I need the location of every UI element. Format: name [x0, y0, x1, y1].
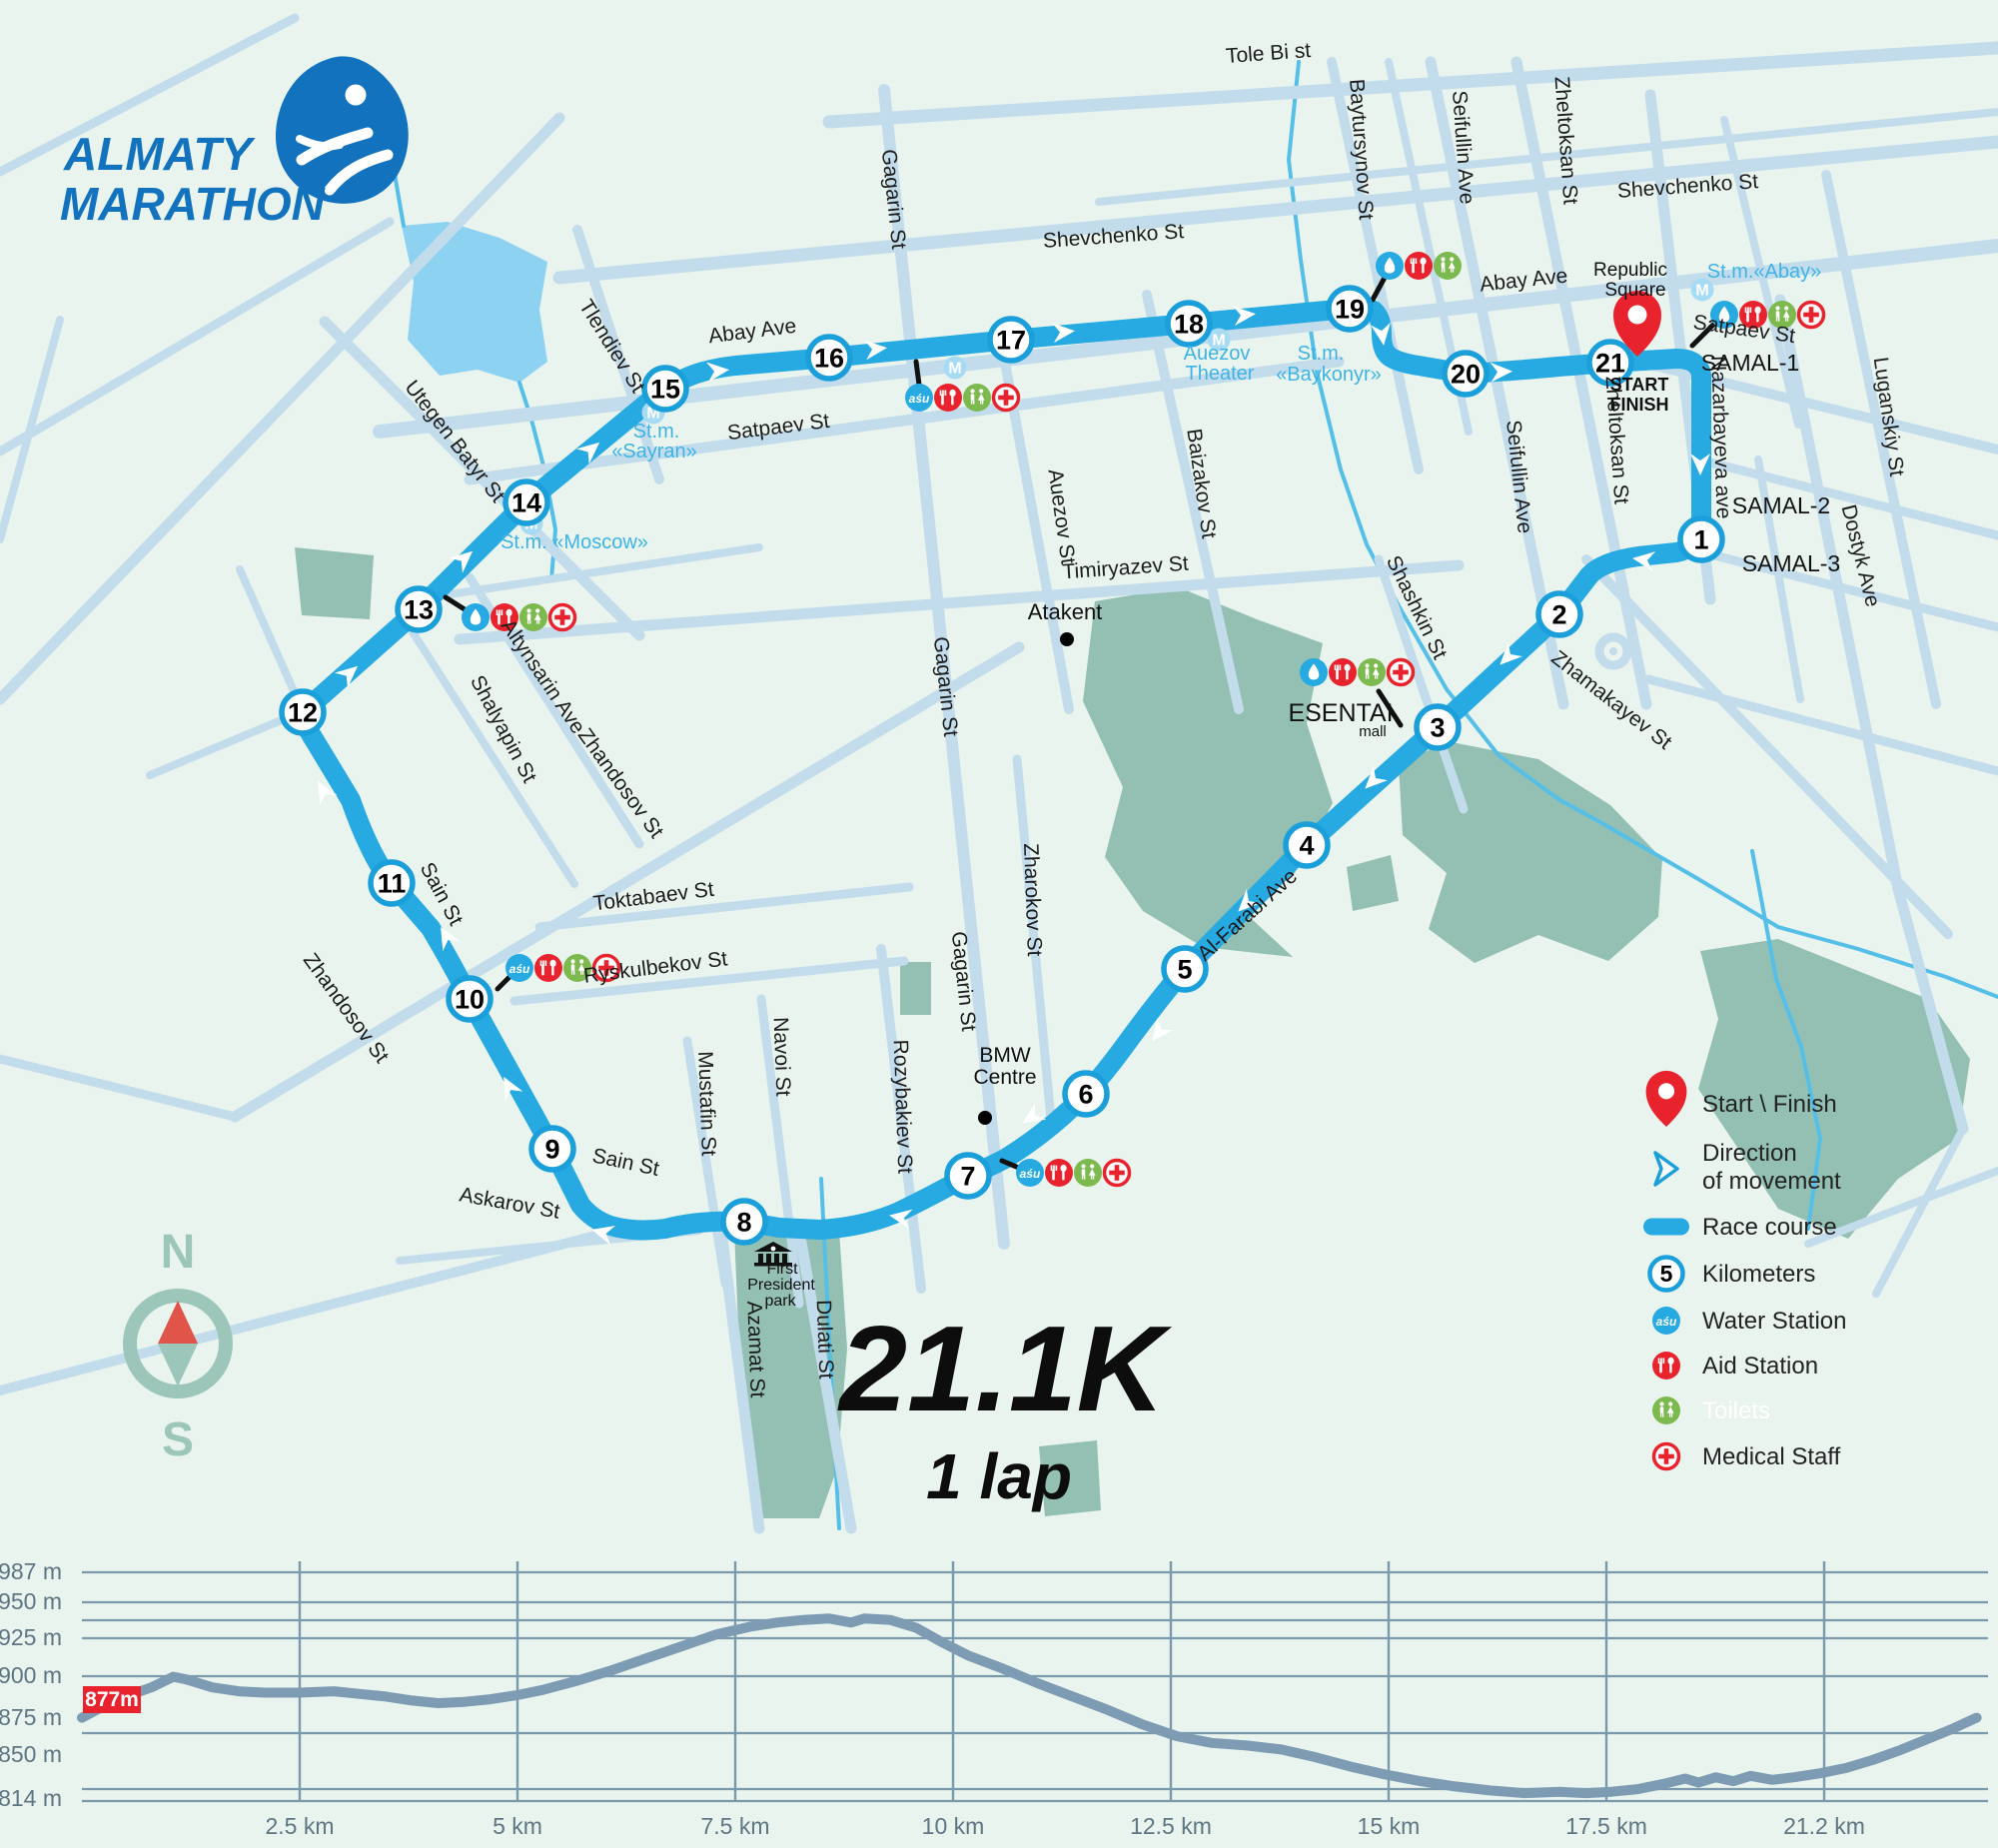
toilets-icon — [1434, 252, 1462, 280]
logo-line2: MARATHON — [60, 178, 326, 230]
svg-text:aśu: aśu — [1656, 1315, 1677, 1329]
roundabout-center — [1609, 647, 1617, 655]
medical-staff-icon — [550, 605, 575, 630]
legend-label-2: of movement — [1702, 1168, 1841, 1195]
water-station-icon: aśu — [505, 954, 533, 982]
svg-text:11: 11 — [378, 869, 407, 899]
water-station-icon — [1300, 658, 1328, 686]
metro-station-label: St.m. — [1298, 343, 1345, 365]
svg-text:5: 5 — [1177, 955, 1192, 985]
km-marker-17: 17 — [990, 319, 1032, 361]
place-label: Centre — [973, 1066, 1036, 1089]
svg-text:5: 5 — [1660, 1261, 1673, 1287]
km-marker-1: 1 — [1680, 518, 1722, 560]
metro-station-label: St.m.«Abay» — [1707, 261, 1822, 283]
station-leader-line — [916, 362, 919, 385]
elevation-x-tick-label: 10 km — [922, 1813, 985, 1839]
metro-station-label: Auezov — [1184, 343, 1251, 365]
legend-item-toilets: Toilets — [1652, 1396, 1770, 1424]
place-label: Republic — [1593, 260, 1667, 281]
elevation-x-tick-label: 2.5 km — [265, 1813, 334, 1839]
km-marker-14: 14 — [505, 481, 547, 523]
elevation-x-tick-label: 7.5 km — [700, 1813, 769, 1839]
medical-staff-icon — [994, 386, 1019, 411]
water-station-icon — [1376, 252, 1404, 280]
svg-text:1: 1 — [1693, 525, 1708, 555]
svg-text:aśu: aśu — [1020, 1167, 1041, 1181]
elevation-y-tick-label: 814 m — [0, 1785, 62, 1811]
legend-label: Direction — [1702, 1140, 1797, 1167]
place-label: FINISH — [1609, 395, 1668, 415]
water-station-icon: aśu — [905, 384, 933, 412]
svg-text:14: 14 — [511, 488, 541, 518]
elevation-y-tick-label: 950 m — [0, 1588, 62, 1614]
legend-label: Kilometers — [1702, 1261, 1815, 1288]
water-station-icon — [462, 603, 490, 631]
laps-subtitle: 1 lap — [926, 1440, 1072, 1512]
svg-text:16: 16 — [814, 344, 844, 374]
park-area — [295, 547, 374, 619]
elevation-x-tick-label: 15 km — [1358, 1813, 1421, 1839]
poi-dot — [1060, 632, 1074, 646]
park-area — [900, 962, 931, 1015]
street-label: Mustafin St — [693, 1051, 720, 1157]
metro-station-label: St.m. — [633, 421, 680, 443]
svg-text:6: 6 — [1078, 1080, 1093, 1110]
elevation-x-tick-label: 5 km — [493, 1813, 542, 1839]
elevation-x-tick-label: 21.2 km — [1783, 1813, 1865, 1839]
place-label: mall — [1359, 723, 1387, 740]
place-label: SAMAL-3 — [1742, 550, 1840, 576]
km-marker-3: 3 — [1417, 706, 1459, 748]
aid-station-icon — [534, 954, 562, 982]
water-station-icon: aśu — [1016, 1159, 1044, 1187]
logo-line1: ALMATY — [63, 128, 257, 180]
svg-text:17: 17 — [996, 326, 1026, 356]
toilets-icon — [963, 384, 991, 412]
compass-north-label: N — [161, 1226, 196, 1279]
svg-text:13: 13 — [404, 595, 434, 625]
aid-station-icon — [1045, 1159, 1073, 1187]
metro-station-label: «Sayran» — [611, 441, 697, 462]
toilets-icon — [1358, 658, 1386, 686]
place-label: Atakent — [1028, 599, 1103, 624]
street-label: Navoi St — [769, 1017, 795, 1097]
svg-text:8: 8 — [736, 1208, 751, 1238]
svg-text:21: 21 — [1595, 349, 1625, 379]
start-elevation-badge-label: 877m — [85, 1688, 139, 1711]
medical-staff-icon — [1105, 1161, 1130, 1186]
km-marker-9: 9 — [531, 1128, 573, 1170]
aid-station-icon — [1329, 658, 1357, 686]
elevation-y-tick-label: 987 m — [0, 1558, 62, 1584]
svg-text:12: 12 — [288, 698, 318, 728]
map-canvas: aśuaśuaśuMMMMM12345678910111213141516171… — [0, 0, 1998, 1848]
svg-text:2: 2 — [1551, 600, 1566, 630]
aid-station-icon — [1405, 252, 1433, 280]
km-marker-2: 2 — [1538, 593, 1580, 635]
metro-station-label: «Baykonyr» — [1276, 364, 1382, 386]
station-group: aśu — [1002, 1159, 1130, 1187]
toilets-icon — [1074, 1159, 1102, 1187]
svg-text:M: M — [948, 361, 961, 378]
km-marker-18: 18 — [1168, 303, 1210, 345]
place-label: START — [1610, 375, 1669, 395]
svg-text:10: 10 — [455, 985, 485, 1015]
km-marker-4: 4 — [1286, 824, 1328, 866]
legend-label: Start \ Finish — [1702, 1091, 1837, 1118]
compass-south-label: S — [162, 1413, 194, 1466]
svg-text:18: 18 — [1174, 310, 1204, 340]
svg-text:7: 7 — [960, 1162, 975, 1192]
legend-item-km: 5Kilometers — [1650, 1258, 1816, 1291]
km-marker-10: 10 — [449, 978, 491, 1020]
svg-text:aśu: aśu — [509, 962, 530, 976]
legend-label: Aid Station — [1702, 1353, 1818, 1380]
svg-text:19: 19 — [1335, 295, 1365, 325]
place-label: Square — [1604, 280, 1665, 301]
km-marker-6: 6 — [1065, 1073, 1107, 1115]
aid-station-icon — [934, 384, 962, 412]
metro-station-label: St.m. «Moscow» — [500, 531, 648, 553]
elevation-y-tick-label: 850 m — [0, 1741, 62, 1767]
km-marker-7: 7 — [947, 1155, 989, 1197]
place-label: SAMAL-2 — [1732, 492, 1830, 518]
km-marker-16: 16 — [808, 337, 850, 379]
almaty-marathon-course-map: aśuaśuaśuMMMMM12345678910111213141516171… — [0, 0, 1998, 1848]
medical-staff-icon — [1799, 303, 1824, 328]
metro-station-label: Theater — [1186, 363, 1255, 385]
elevation-y-tick-label: 900 m — [0, 1662, 62, 1688]
svg-text:3: 3 — [1430, 713, 1445, 743]
legend-label: Race course — [1702, 1214, 1837, 1241]
legend-label: Water Station — [1702, 1308, 1847, 1335]
elevation-x-tick-label: 17.5 km — [1565, 1813, 1647, 1839]
legend-label: Medical Staff — [1702, 1443, 1841, 1470]
svg-text:M: M — [1695, 283, 1708, 300]
km-marker-20: 20 — [1445, 353, 1487, 395]
svg-text:20: 20 — [1451, 360, 1481, 390]
svg-text:9: 9 — [544, 1135, 559, 1165]
place-label: SAMAL-1 — [1701, 350, 1799, 376]
medical-staff-icon — [1389, 660, 1414, 685]
poi-dot — [978, 1111, 992, 1125]
elevation-y-tick-label: 925 m — [0, 1624, 62, 1650]
street-label: Azamat St — [742, 1301, 768, 1398]
km-marker-11: 11 — [371, 862, 413, 904]
km-marker-8: 8 — [723, 1201, 765, 1243]
elevation-x-tick-label: 12.5 km — [1130, 1813, 1212, 1839]
street-label: Dulati St — [812, 1300, 838, 1380]
place-label: BMW — [979, 1044, 1031, 1067]
km-marker-15: 15 — [644, 368, 686, 410]
svg-text:15: 15 — [650, 375, 680, 405]
place-label: President — [747, 1277, 815, 1294]
street-label: Zharokov St — [1019, 843, 1046, 957]
metro-station-icon: M — [944, 357, 967, 380]
svg-text:4: 4 — [1299, 831, 1314, 861]
place-label: park — [764, 1293, 796, 1310]
distance-title: 21.1K — [837, 1301, 1172, 1436]
km-marker-12: 12 — [282, 691, 324, 733]
km-marker-13: 13 — [398, 588, 440, 630]
street-label: Rozybakiev St — [889, 1039, 917, 1174]
km-marker-19: 19 — [1329, 288, 1371, 330]
svg-text:aśu: aśu — [909, 392, 930, 406]
legend-label: Toilets — [1702, 1397, 1770, 1424]
elevation-y-tick-label: 875 m — [0, 1704, 62, 1730]
